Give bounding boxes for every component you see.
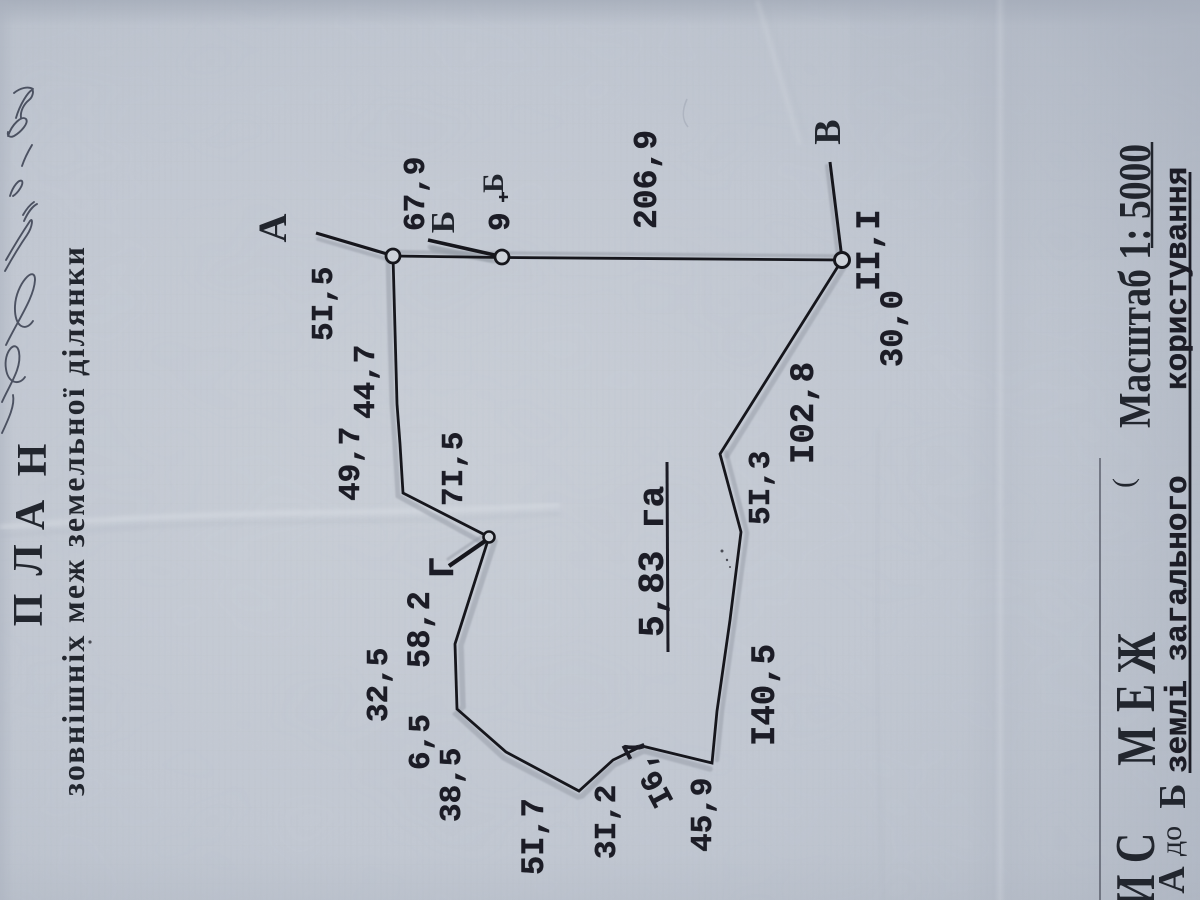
svg-text:Ж: Ж [1105, 632, 1167, 674]
svg-text:Г: Г [424, 557, 464, 578]
svg-text:44,7: 44,7 [349, 345, 384, 419]
svg-text:7І,5: 7І,5 [437, 432, 472, 506]
svg-text:9: 9 [484, 212, 519, 231]
svg-text:ІІ,І: ІІ,І [852, 209, 890, 291]
svg-text:зовнішніх меж земельної ділянк: зовнішніх меж земельної ділянки [55, 245, 91, 796]
svg-text:Н: Н [10, 444, 56, 477]
svg-text:5І,7: 5І,7 [516, 798, 553, 875]
svg-text:49,7: 49,7 [334, 427, 369, 501]
svg-text:Б: Б [477, 173, 510, 193]
svg-text:5І,3: 5І,3 [744, 451, 779, 525]
svg-text:П: П [6, 594, 52, 627]
svg-text:А: А [8, 499, 54, 530]
svg-text:Б: Б [1152, 783, 1194, 808]
svg-text:30,0: 30,0 [875, 290, 912, 367]
svg-text:3І,2: 3І,2 [590, 785, 625, 859]
svg-text:5І,5: 5І,5 [307, 267, 342, 341]
svg-text:І40,5: І40,5 [747, 644, 785, 746]
svg-text:Е: Е [1104, 684, 1166, 712]
svg-text:І02,8: І02,8 [786, 362, 824, 464]
svg-text:38,5: 38,5 [435, 748, 470, 822]
svg-text:М: М [1105, 726, 1167, 766]
svg-text:45,9: 45,9 [686, 778, 721, 852]
svg-text:до: до [1155, 826, 1188, 856]
svg-text:32,5: 32,5 [362, 648, 397, 722]
svg-text:Б: Б [425, 211, 462, 233]
svg-text:58,2: 58,2 [402, 591, 439, 668]
svg-text:А: А [1151, 866, 1193, 894]
svg-text:В: В [807, 119, 849, 144]
svg-text:(: ( [1107, 478, 1140, 488]
svg-text:6,5: 6,5 [404, 714, 439, 770]
svg-text:А: А [250, 213, 295, 242]
svg-text:Л: Л [6, 544, 52, 575]
svg-text:206,9: 206,9 [629, 130, 666, 229]
